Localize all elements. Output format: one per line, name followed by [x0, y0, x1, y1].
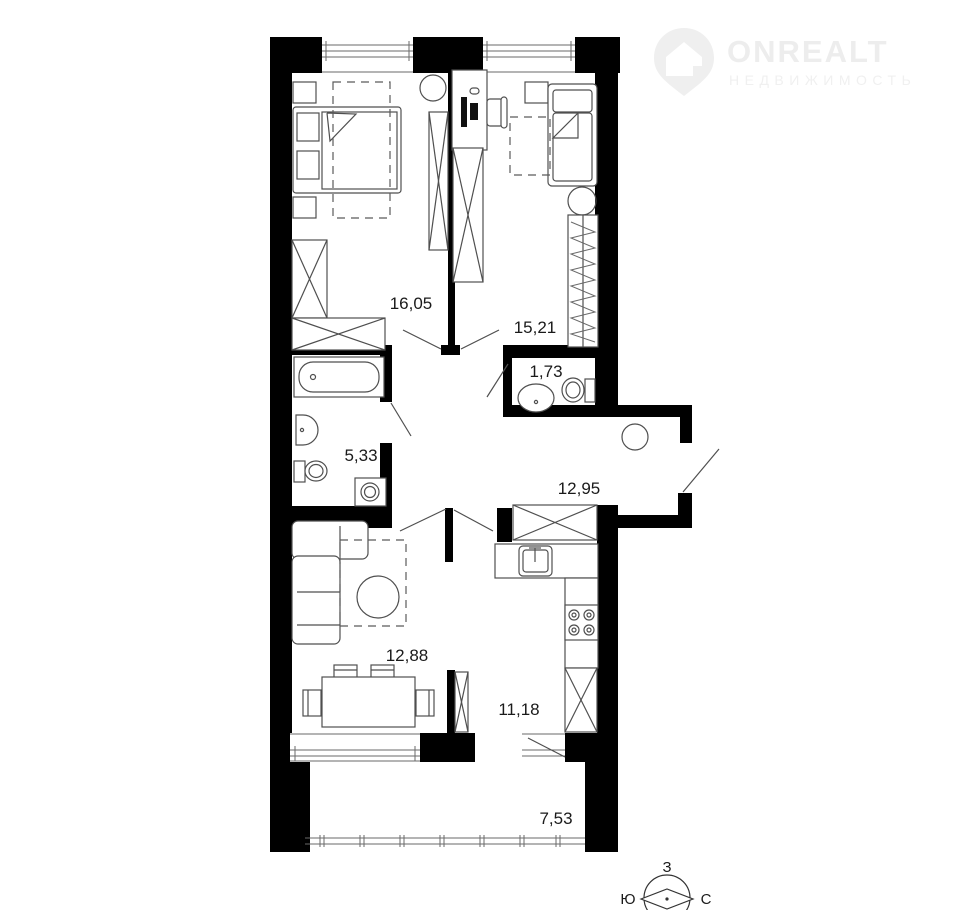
pouf-icon	[622, 424, 648, 450]
nightstand-icon	[525, 82, 548, 103]
kitchen-sink-icon	[519, 546, 552, 576]
room-area-label-bedroom-1: 16,05	[390, 294, 433, 313]
brand-tagline: НЕДВИЖИМОСТЬ	[729, 72, 916, 88]
window-bedroom-1	[322, 41, 413, 72]
bath-toilet-icon	[294, 461, 327, 482]
washing-machine-icon	[355, 478, 386, 506]
single-bed-icon	[548, 84, 597, 186]
floorplan-drawing: ONREALT НЕДВИЖИМОСТЬ	[0, 0, 960, 910]
wc-sink-icon	[518, 384, 554, 412]
door-swings	[391, 330, 719, 531]
window-kitchen	[522, 734, 565, 756]
nightstand-icon	[293, 197, 316, 218]
cabinet-icon	[455, 672, 468, 732]
desk-chair-icon	[487, 97, 507, 128]
brand-logo: ONREALT НЕДВИЖИМОСТЬ	[654, 28, 916, 96]
fridge-icon	[565, 668, 597, 732]
rug-icon	[510, 117, 550, 175]
room-area-label-bedroom-2: 15,21	[514, 318, 557, 337]
desk-icon	[452, 70, 487, 150]
stool-icon	[568, 187, 596, 215]
balcony-railing	[305, 835, 585, 847]
bath-sink-icon	[296, 415, 318, 445]
room-area-label-hallway: 12,95	[558, 479, 601, 498]
wardrobe-icon	[453, 148, 483, 282]
room-area-label-balcony: 7,53	[539, 809, 572, 828]
coffee-table-icon	[357, 576, 399, 618]
dining-table-icon	[303, 665, 434, 727]
hall-wardrobe-icon	[513, 505, 597, 540]
stove-icon	[565, 605, 598, 640]
wardrobe-icon	[292, 240, 327, 318]
wardrobe-icon	[429, 112, 448, 250]
compass-north-label: С	[701, 891, 712, 908]
wc-toilet-icon	[562, 378, 595, 402]
open-wardrobe-rail-icon	[568, 215, 598, 347]
floorplan-page: ONREALT НЕДВИЖИМОСТЬ	[0, 0, 960, 910]
brand-name: ONREALT	[727, 34, 889, 69]
compass-south-label: Ю	[620, 891, 635, 908]
stool-icon	[420, 75, 446, 101]
compass-west-label: З	[662, 859, 671, 876]
nightstand-icon	[293, 82, 316, 103]
window-living-room	[290, 734, 420, 761]
window-bedroom-2	[483, 41, 575, 72]
room-area-label-bathroom: 5,33	[344, 446, 377, 465]
wardrobe-icon	[292, 318, 385, 350]
bathtub-icon	[294, 357, 384, 397]
room-area-label-living-room: 12,88	[386, 646, 429, 665]
balcony-door	[528, 738, 565, 757]
room-area-label-wc: 1,73	[529, 362, 562, 381]
house-pin-icon	[654, 28, 714, 96]
double-bed-icon	[293, 107, 401, 193]
room-area-label-kitchen: 11,18	[498, 700, 539, 719]
compass-rose: З Ю С	[620, 859, 711, 910]
